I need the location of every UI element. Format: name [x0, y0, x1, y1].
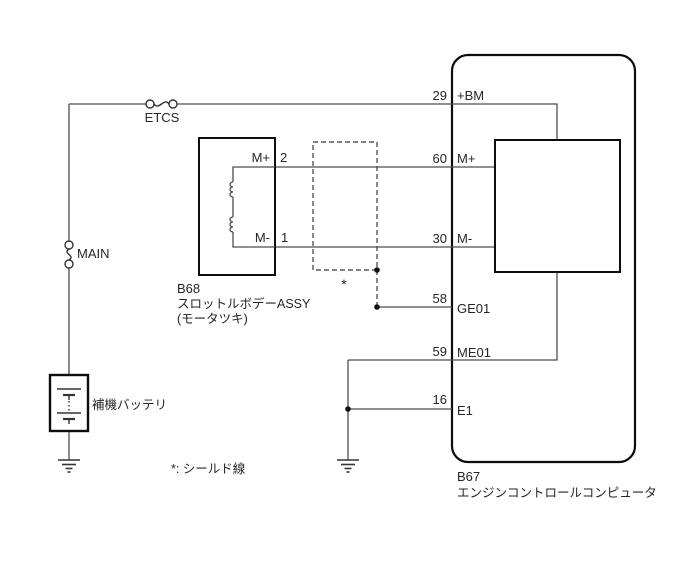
shield-star-mark: *: [341, 276, 347, 292]
ecu-pin-59-number: 59: [433, 344, 447, 359]
e1-junction-dot: [345, 406, 351, 412]
battery-label: 補機バッテリ: [92, 397, 167, 412]
ecu-pin-16-number: 16: [433, 392, 447, 407]
etcs-fuse-label: ETCS: [145, 110, 180, 125]
battery: [50, 375, 88, 431]
ecu-pin-29-number: 29: [433, 88, 447, 103]
ecu-pin-29-name: +BM: [457, 88, 484, 103]
wiring-diagram-page: ETCS MAIN M+ 2 M- 1 B68 スロットルボデーASSY (モー…: [0, 0, 688, 560]
shield-wire-box: [313, 142, 377, 270]
ecu-pin-30-name: M-: [457, 231, 472, 246]
ecu-inner-module: [495, 140, 620, 272]
ecu-pin-60-name: M+: [457, 151, 475, 166]
shield-junction-dot: [374, 267, 380, 273]
ecu-pin-60-number: 60: [433, 151, 447, 166]
ecu-pin-30-number: 30: [433, 231, 447, 246]
wiring-diagram: ETCS MAIN M+ 2 M- 1 B68 スロットルボデーASSY (モー…: [0, 0, 688, 560]
e1-ground-icon: [337, 460, 359, 472]
ecu-pin-58-name: GE01: [457, 301, 490, 316]
battery-ground-icon: [58, 460, 80, 472]
shield-note: *: シールド線: [171, 461, 246, 476]
b68-pin-mplus-label: M+: [252, 150, 270, 165]
ecu-pin-16-name: E1: [457, 403, 473, 418]
ecu-pin-59-name: ME01: [457, 345, 491, 360]
b68-pin-mminus-number: 1: [281, 230, 288, 245]
b68-pin-mplus-number: 2: [280, 150, 287, 165]
b68-name-label: スロットルボデーASSY: [177, 296, 311, 311]
b67-name-label: エンジンコントロールコンピュータ: [457, 486, 657, 500]
ecu-pin-58-number: 58: [433, 291, 447, 306]
main-fuse-icon: [65, 241, 73, 268]
ge01-junction-dot: [374, 304, 380, 310]
b68-pin-mminus-label: M-: [255, 230, 270, 245]
main-fuse-label: MAIN: [77, 246, 110, 261]
b68-sub-label: (モータツキ): [177, 312, 248, 326]
b67-id-label: B67: [457, 469, 480, 484]
etcs-fuse-icon: [146, 100, 177, 108]
b68-id-label: B68: [177, 281, 200, 296]
